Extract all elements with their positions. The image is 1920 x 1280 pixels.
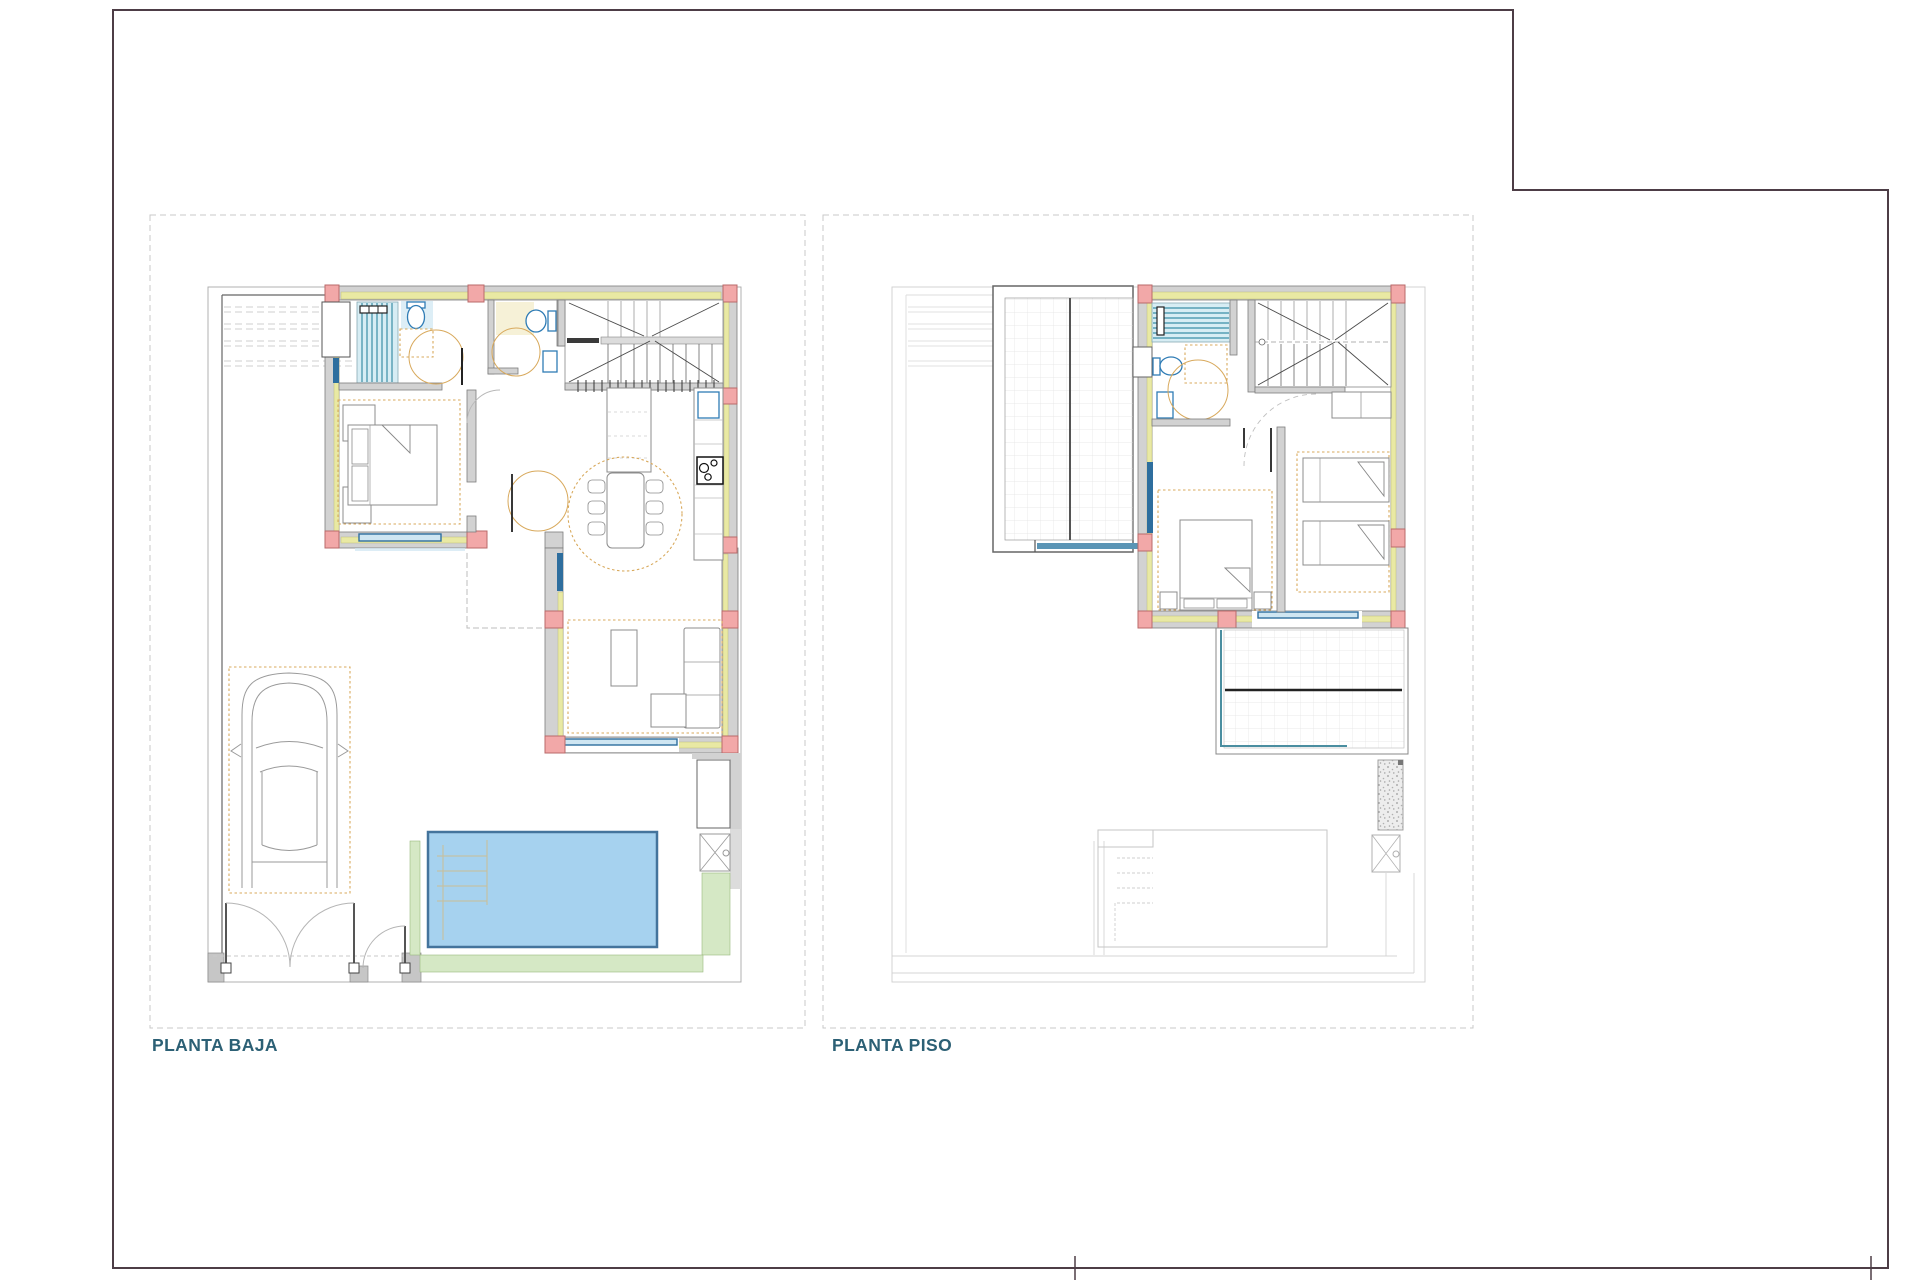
double-bed (1180, 520, 1252, 610)
ghost-pool-outline (1098, 830, 1327, 947)
sofa (651, 628, 720, 728)
toilet-icon (526, 310, 546, 332)
kitchen-sink-icon (698, 392, 719, 418)
upper-bathroom (1152, 300, 1237, 426)
master-bedroom (338, 400, 460, 524)
dining-table (607, 473, 644, 548)
toilet-icon (1160, 357, 1182, 375)
door-swing-icon (1168, 360, 1228, 420)
rear-terrace (1216, 628, 1408, 754)
driveway-gate (221, 903, 359, 973)
single-bed (1303, 521, 1389, 565)
floor-plan-canvas: PLANTA BAJA (0, 0, 1920, 1280)
bedroom-double (1158, 490, 1272, 610)
car (231, 673, 348, 888)
dining-area (568, 457, 682, 571)
floor-label-planta-piso: PLANTA PISO (832, 1035, 952, 1055)
shaft (1133, 347, 1152, 377)
vanity (1185, 345, 1227, 383)
towel-rail-icon (360, 306, 387, 313)
sliding-door-icon (1258, 612, 1358, 618)
wardrobe (322, 302, 350, 357)
window-icon (333, 358, 339, 383)
coffee-table (611, 630, 637, 686)
mirror-icon (231, 744, 241, 757)
drawing-sheet: PLANTA BAJA (0, 0, 1920, 1280)
roof-terrace (993, 286, 1138, 552)
parking-space (229, 667, 350, 893)
entrance-gates (221, 903, 410, 973)
window-icon (359, 534, 441, 541)
double-bed (348, 425, 437, 505)
living-room (467, 553, 722, 733)
upper-staircase (1248, 300, 1391, 393)
storage-room (692, 753, 741, 829)
sheet-border (113, 10, 1888, 1280)
swimming-pool (428, 832, 657, 947)
nightstand (1160, 592, 1177, 609)
terrace-railing (1037, 543, 1138, 549)
sink-icon (543, 351, 557, 372)
single-bed (1303, 458, 1389, 502)
staircase (558, 300, 723, 392)
upper-floor-overhang-dashed (467, 553, 545, 628)
landing-closet (1332, 392, 1391, 418)
kitchen-island (607, 388, 651, 472)
sink-icon (1157, 392, 1173, 418)
bathroom (322, 301, 463, 390)
mirror-icon (338, 744, 348, 757)
door-swing-icon (508, 471, 568, 531)
guest-wc (488, 300, 565, 376)
floor-label-planta-baja: PLANTA BAJA (152, 1035, 278, 1055)
towel-rail-icon (1157, 307, 1164, 335)
nightstand (1254, 592, 1271, 609)
bedroom-twin (1297, 452, 1389, 592)
window-icon (557, 553, 563, 591)
panel-planta-piso: PLANTA PISO (823, 215, 1473, 1055)
window-icon (1147, 462, 1153, 533)
pedestrian-gate (363, 926, 410, 973)
gravel-strip (1378, 760, 1403, 830)
toilet-icon (408, 306, 425, 329)
skylight-grate (700, 834, 730, 871)
sliding-door-icon (563, 739, 677, 745)
hallway (467, 390, 568, 532)
vanity (400, 329, 433, 357)
panel-planta-baja: PLANTA BAJA (150, 215, 805, 1055)
skylight-grate-ghost (1372, 835, 1400, 872)
